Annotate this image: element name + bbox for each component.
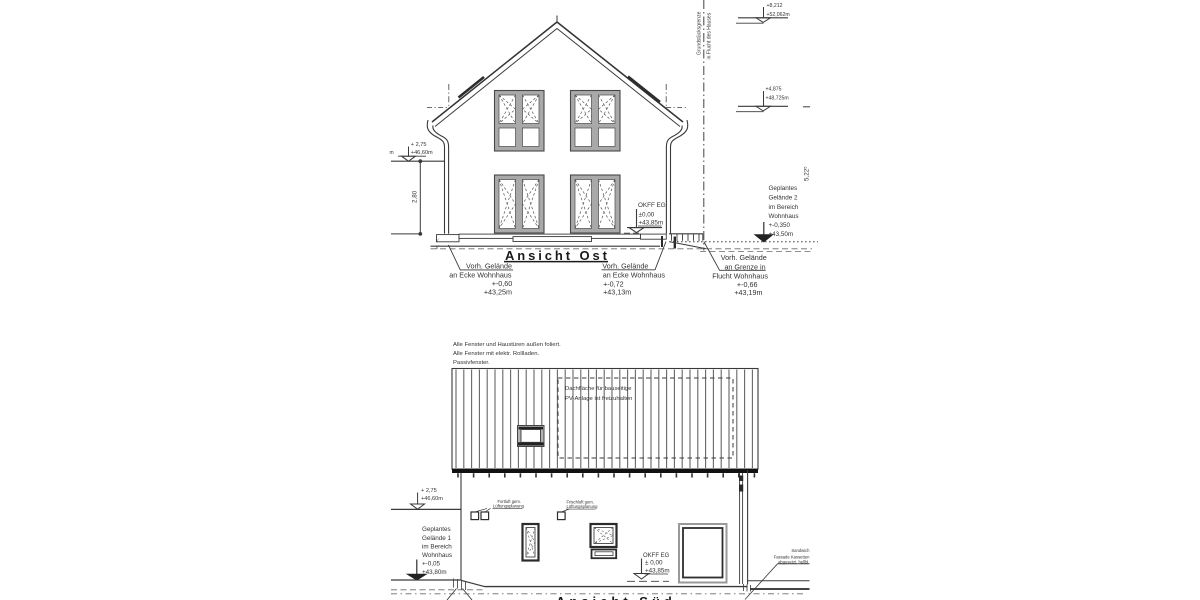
svg-text:2,80: 2,80 [412, 190, 419, 203]
svg-text:+43,85m: +43,85m [639, 220, 664, 227]
svg-text:+8,212: +8,212 [767, 3, 783, 9]
svg-text:+46,60m: +46,60m [421, 496, 443, 502]
svg-text:+-0,350: +-0,350 [769, 222, 791, 229]
svg-text:an Grenze in: an Grenze in [724, 262, 765, 271]
svg-text:Vorh. Gelände: Vorh. Gelände [602, 261, 648, 270]
svg-text:Vorh. Gelände: Vorh. Gelände [466, 261, 512, 270]
svg-text:Alle Fenster mit elektr. Rolll: Alle Fenster mit elektr. Rollladen. [453, 351, 539, 357]
svg-text:OKFF EG: OKFF EG [638, 202, 666, 209]
svg-text:OKFF EG: OKFF EG [643, 553, 670, 559]
svg-text:Vorh. Gelände: Vorh. Gelände [721, 253, 767, 262]
svg-text:Lüftungsplanung: Lüftungsplanung [567, 504, 599, 509]
svg-text:Gelände 2: Gelände 2 [769, 195, 799, 202]
svg-text:+46,60m: +46,60m [411, 150, 433, 156]
svg-text:+ 2,75: + 2,75 [411, 142, 427, 148]
svg-text:abgesetzt, hellbl.: abgesetzt, hellbl. [778, 559, 809, 564]
svg-text:Wohnhaus: Wohnhaus [422, 552, 452, 559]
svg-text:Ansicht Süd: Ansicht Süd [556, 594, 676, 600]
svg-text:+-0,05: +-0,05 [422, 561, 441, 568]
svg-text:in Flucht des Hauses: in Flucht des Hauses [707, 12, 713, 59]
svg-text:PV-Anlage ist freizuhalten: PV-Anlage ist freizuhalten [565, 396, 632, 402]
svg-text:Alle Fenster und Haustüren auß: Alle Fenster und Haustüren außen foliert… [453, 342, 561, 348]
svg-text:an Ecke Wohnhaus: an Ecke Wohnhaus [603, 271, 666, 280]
svg-text:Dachfläche für bauseitige: Dachfläche für bauseitige [565, 386, 632, 392]
svg-text:Gelände 1: Gelände 1 [422, 535, 452, 542]
svg-text:Geplantes: Geplantes [422, 526, 451, 533]
svg-text:+52,062m: +52,062m [767, 12, 790, 18]
svg-text:Grundstücksgrenze: Grundstücksgrenze [697, 11, 703, 55]
svg-text:± 0,00: ± 0,00 [645, 560, 663, 567]
svg-text:+48,725m: +48,725m [766, 96, 789, 102]
svg-text:Lüftungsplanung: Lüftungsplanung [493, 504, 525, 509]
svg-text:±0,00: ±0,00 [639, 212, 655, 219]
svg-text:+43,19m: +43,19m [734, 288, 762, 297]
svg-text:Wohnhaus: Wohnhaus [769, 213, 799, 220]
svg-text:5,225: 5,225 [803, 166, 811, 181]
svg-text:+ 2,75: + 2,75 [421, 488, 437, 494]
svg-text:+43,13m: +43,13m [603, 288, 631, 297]
svg-text:m: m [390, 150, 394, 156]
svg-text:Geplantes: Geplantes [769, 185, 798, 192]
svg-text:Passivfenster.: Passivfenster. [453, 360, 490, 366]
svg-text:im Bereich: im Bereich [769, 204, 799, 211]
svg-text:Ansicht Ost: Ansicht Ost [505, 248, 610, 263]
svg-text:+43,25m: +43,25m [484, 287, 512, 296]
svg-text:an Ecke Wohnhaus: an Ecke Wohnhaus [449, 270, 512, 279]
svg-text:Sandwich: Sandwich [791, 548, 810, 553]
svg-text:+4,875: +4,875 [766, 87, 782, 93]
svg-text:im Bereich: im Bereich [422, 544, 452, 551]
